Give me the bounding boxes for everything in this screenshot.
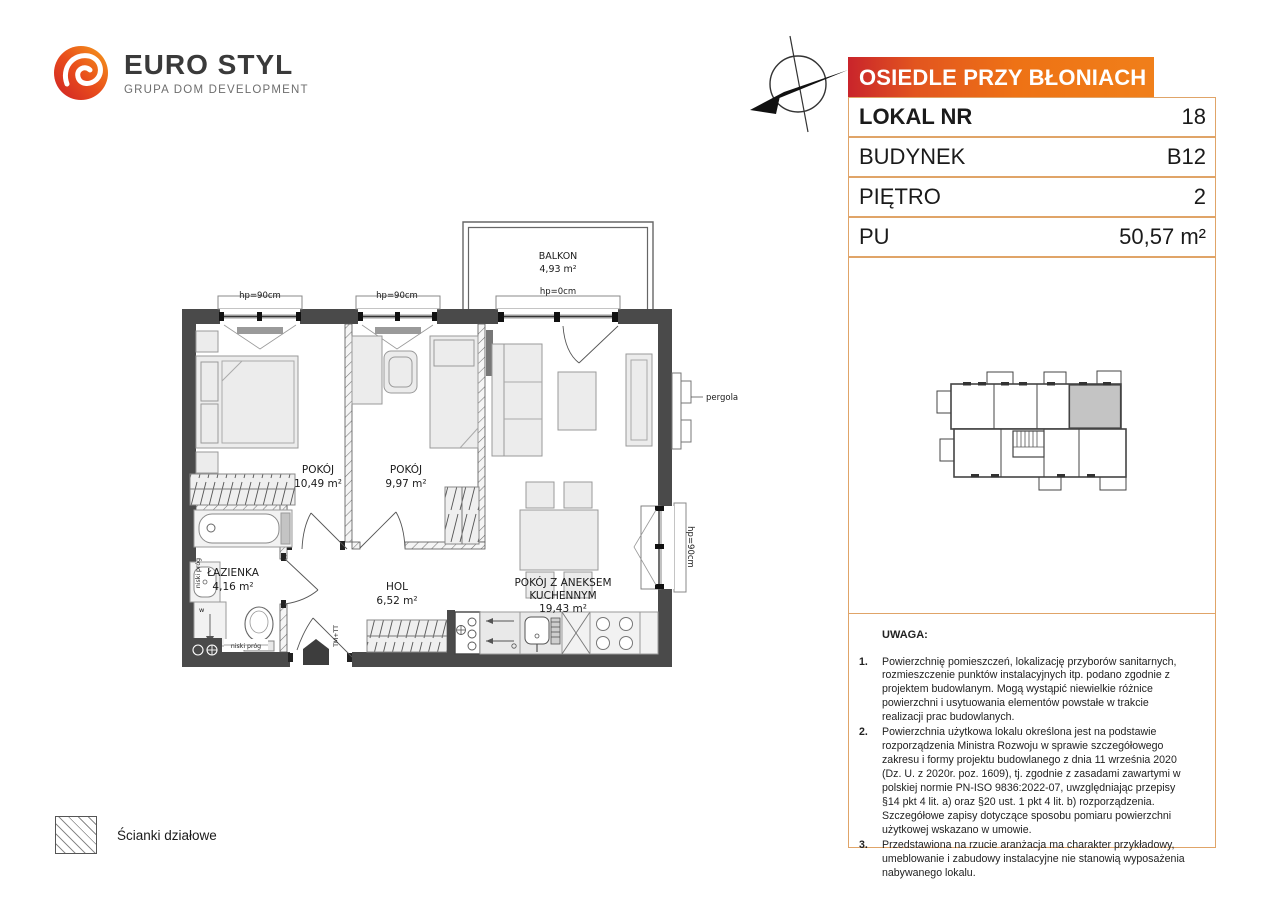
notes-title: UWAGA: [882, 628, 1191, 643]
low-threshold-2: niski próg [224, 639, 268, 650]
chair [526, 482, 554, 508]
room-label-salon-2: KUCHENNYM [529, 590, 596, 602]
stove [590, 612, 640, 654]
brand-logo: EURO STYL GRUPA DOM DEVELOPMENT [52, 44, 309, 102]
bedroom2-furniture [352, 330, 493, 448]
note-number: 2. [859, 726, 882, 838]
room-label-pokoj2: POKÓJ [390, 463, 422, 476]
room-label-lazienka: ŁAZIENKA [206, 567, 260, 579]
desk [352, 336, 382, 404]
partition-hatch-swatch [55, 816, 97, 854]
room-area-salon: 19,43 m² [539, 603, 587, 615]
note-text: Powierzchnię pomieszczeń, lokalizację pr… [882, 656, 1191, 726]
note-item-1: 1. Powierzchnię pomieszczeń, lokalizację… [859, 656, 1191, 726]
room-label-hol: HOL [386, 581, 408, 593]
room-label-pokoj1: POKÓJ [302, 463, 334, 476]
lokal-value: 18 [1182, 104, 1206, 130]
room-label-balkon: BALKON [539, 251, 578, 262]
pietro-value: 2 [1194, 184, 1206, 210]
balcony-door-height: hp=0cm [540, 287, 576, 297]
svg-text:niski próg: niski próg [231, 642, 261, 650]
nightstand [196, 331, 218, 352]
notes-box: UWAGA: 1. Powierzchnię pomieszczeń, loka… [848, 613, 1216, 848]
dining-table [520, 510, 598, 570]
floorplan-sheet: EURO STYL GRUPA DOM DEVELOPMENT OSIEDLE … [0, 0, 1272, 900]
room-area-balkon: 4,93 m² [539, 264, 576, 275]
note-item-3: 3. Przedstawiona na rzucie aranżacja ma … [859, 839, 1191, 881]
room-area-lazienka: 4,16 m² [212, 581, 253, 593]
room-area-hol: 6,52 m² [376, 595, 417, 607]
budynek-value: B12 [1167, 144, 1206, 170]
brand-tagline: GRUPA DOM DEVELOPMENT [124, 84, 309, 96]
note-number: 1. [859, 656, 882, 726]
livingroom-furniture [492, 344, 652, 598]
window-left: hp=90cm [218, 291, 302, 349]
room-area-pokoj2: 9,97 m² [385, 478, 426, 490]
window-mid-height: hp=90cm [376, 291, 418, 301]
chair [564, 482, 592, 508]
window-left-height: hp=90cm [239, 291, 281, 301]
note-number: 3. [859, 839, 882, 881]
low-threshold-1: niski próg [194, 558, 202, 588]
room-area-pokoj1: 10,49 m² [294, 478, 342, 490]
building-key-plan-box [848, 257, 1216, 615]
pu-label: PU [859, 224, 890, 250]
tm-tt-label: TM+TT [333, 625, 340, 648]
highlighted-unit [1070, 385, 1121, 428]
pietro-label: PIĘTRO [859, 184, 941, 210]
coffee-table [558, 372, 596, 430]
info-row-pietro: PIĘTRO 2 [848, 177, 1216, 217]
apartment-floor-plan: BALKON 4,93 m² hp=90cm [165, 195, 750, 690]
room-label-salon-1: POKÓJ Z ANEKSEM [514, 576, 611, 589]
note-item-2: 2. Powierzchnia użytkowa lokalu określon… [859, 726, 1191, 838]
window-right: hp=90cm [634, 503, 695, 592]
note-text: Powierzchnia użytkowa lokalu określona j… [882, 726, 1191, 838]
nightstand [196, 452, 218, 473]
bedroom1-furniture [196, 331, 298, 473]
note-text: Przedstawiona na rzucie aranżacja ma cha… [882, 839, 1191, 881]
info-row-budynek: BUDYNEK B12 [848, 137, 1216, 177]
north-arrow-icon [746, 26, 854, 144]
toilet [245, 607, 273, 641]
window-right-height: hp=90cm [685, 526, 695, 568]
entrance-marker [303, 639, 329, 665]
washer-label: w [199, 606, 205, 614]
estate-header: OSIEDLE PRZY BŁONIACH [848, 57, 1154, 98]
budynek-label: BUDYNEK [859, 144, 965, 170]
eurostyl-logo-icon [52, 44, 110, 102]
lokal-label: LOKAL NR [859, 104, 972, 130]
building-key-plan [926, 358, 1141, 503]
info-row-lokal: LOKAL NR 18 [848, 97, 1216, 137]
brand-name: EURO STYL [124, 51, 309, 79]
tall-cabinet [480, 612, 520, 654]
info-row-pu: PU 50,57 m² [848, 217, 1216, 257]
pergola-label: pergola [706, 393, 738, 403]
legend-label: Ścianki działowe [117, 828, 217, 843]
tv-cabinet [626, 354, 652, 446]
legend: Ścianki działowe [55, 816, 217, 854]
pu-value: 50,57 m² [1119, 224, 1206, 250]
kitchen [447, 610, 658, 655]
pergola: pergola [672, 373, 738, 449]
